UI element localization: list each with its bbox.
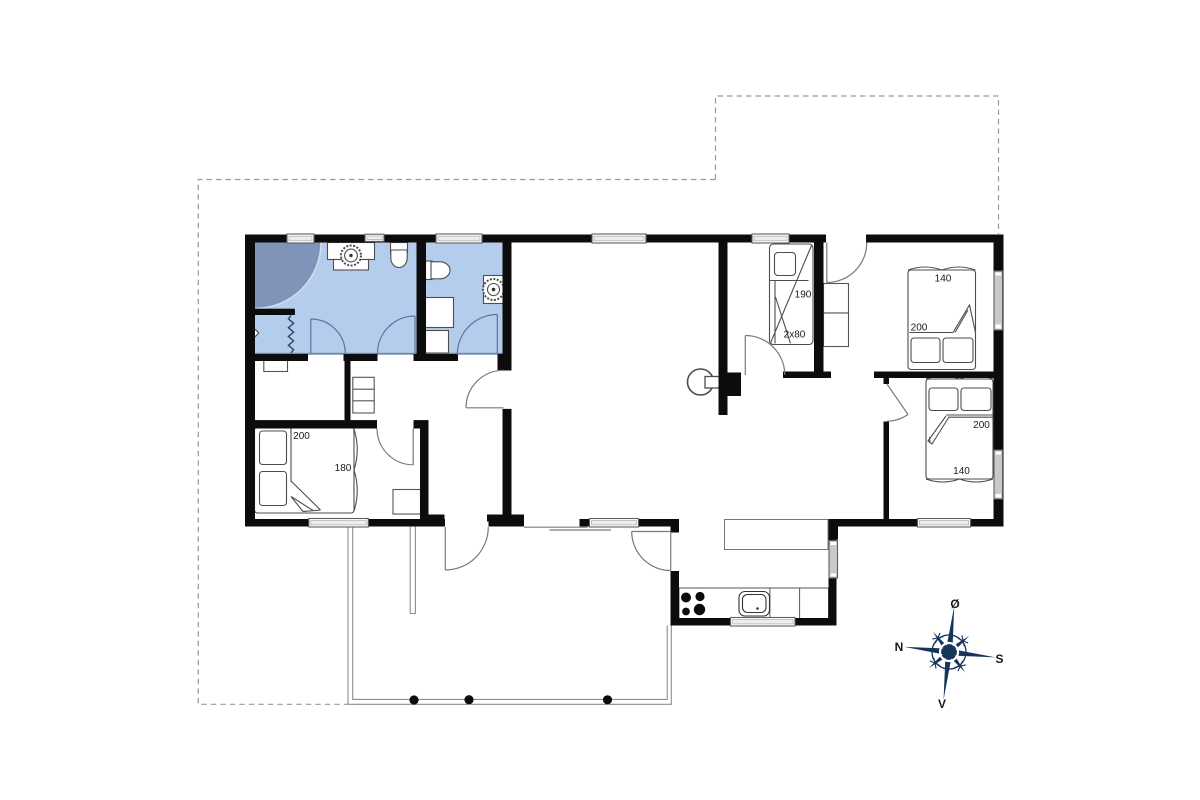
svg-text:2x80: 2x80 [784,330,806,341]
svg-text:200: 200 [911,323,928,334]
svg-text:200: 200 [973,420,990,431]
svg-text:Ø: Ø [950,597,959,611]
svg-text:V: V [938,697,946,711]
svg-text:S: S [995,652,1003,666]
svg-text:190: 190 [795,290,812,301]
svg-text:140: 140 [935,274,952,285]
svg-text:140: 140 [953,466,970,477]
svg-text:N: N [895,640,904,654]
svg-text:200: 200 [293,431,310,442]
svg-text:180: 180 [335,463,352,474]
